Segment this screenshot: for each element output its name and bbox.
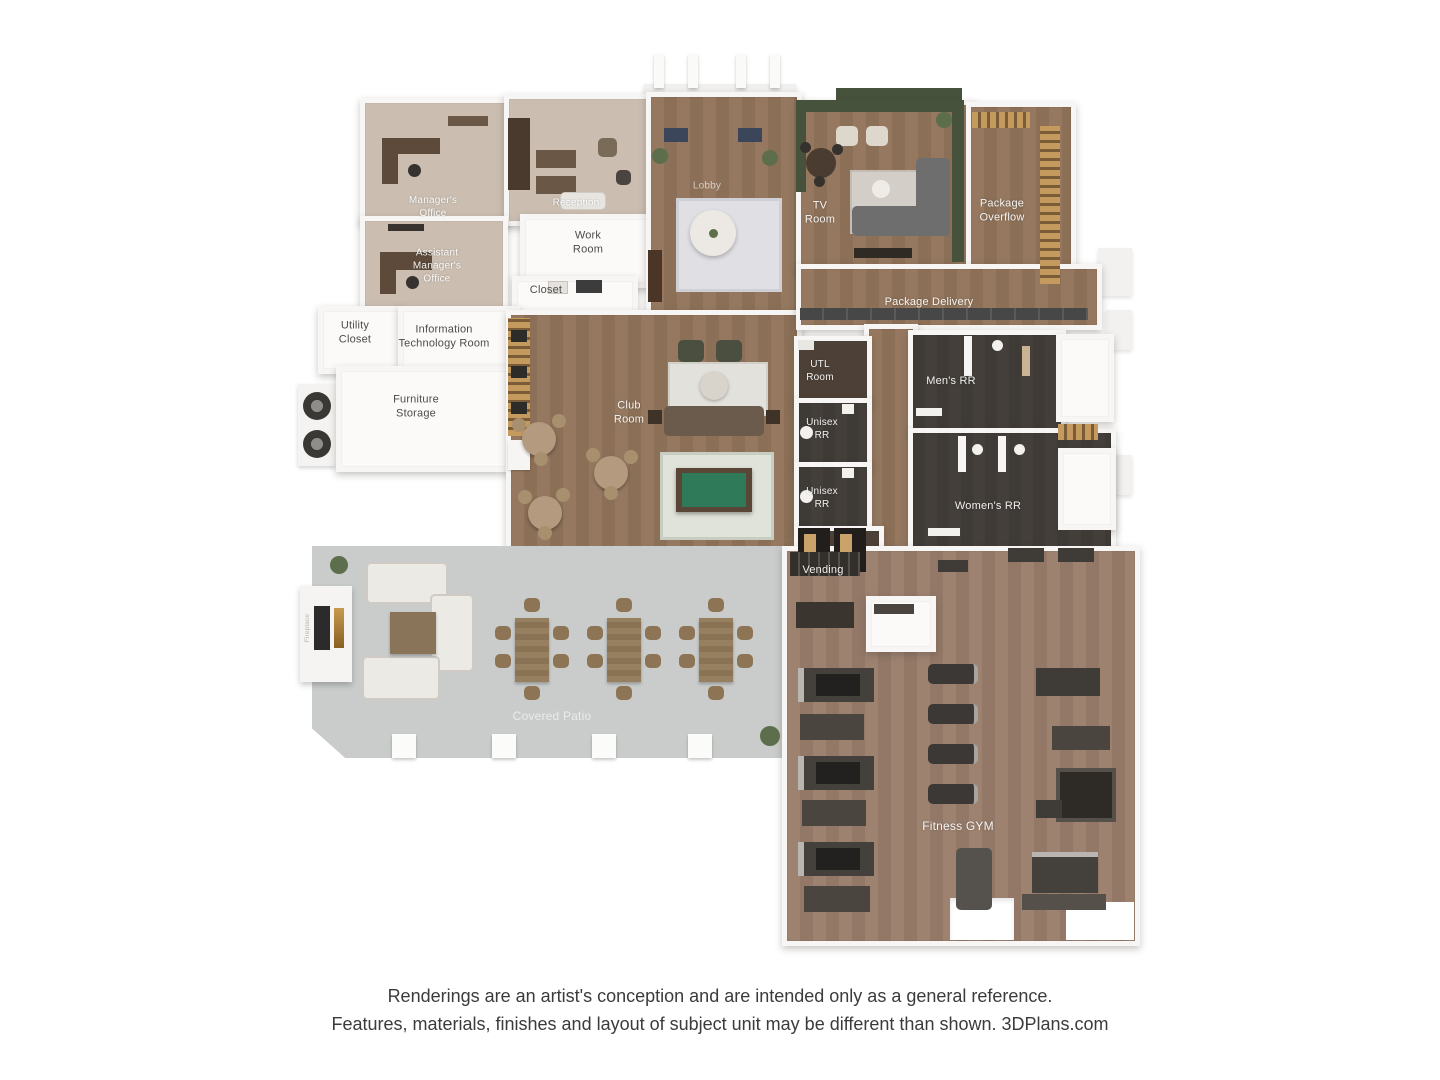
patio-post: [592, 734, 616, 758]
hvac-fan: [303, 392, 331, 420]
round-table: [594, 456, 628, 490]
coffee-table: [872, 180, 890, 198]
locker-shelf: [1058, 424, 1098, 440]
parcel-lockers: [800, 308, 1088, 320]
patio-coffee-table: [390, 612, 436, 654]
office-chair: [408, 164, 421, 177]
patio-chair: [679, 626, 695, 640]
kitchen-appliance: [511, 366, 527, 378]
patio-post: [688, 734, 712, 758]
work-table: [548, 281, 568, 294]
reception-sofa: [560, 192, 606, 210]
patio-chair: [645, 654, 661, 668]
potted-plant: [760, 726, 780, 746]
reception-desk: [536, 150, 576, 168]
exterior-stub: [1098, 248, 1132, 296]
potted-plant: [936, 112, 952, 128]
patio-chair: [737, 626, 753, 640]
rr-sink-counter: [916, 408, 942, 416]
patio-post: [492, 734, 516, 758]
elliptical: [956, 848, 992, 910]
club-sofa: [664, 406, 764, 436]
toilet: [992, 340, 1003, 351]
porch-pillar: [654, 54, 664, 88]
porch-pillar: [736, 54, 746, 88]
toilet: [800, 490, 813, 503]
porch-pillar: [770, 54, 780, 88]
dining-chair: [800, 142, 811, 153]
patio-chair: [524, 686, 540, 700]
patio-post: [392, 734, 416, 758]
round-table: [522, 422, 556, 456]
table-plant: [709, 229, 718, 238]
room-side-closet: [1058, 448, 1116, 530]
disclaimer-line2: Features, materials, finishes and layout…: [0, 1010, 1440, 1038]
reception-chair: [616, 170, 631, 185]
rr-partition: [998, 436, 1006, 472]
dining-chair: [832, 144, 843, 155]
fireplace-flame: [334, 608, 344, 648]
club-chair: [586, 448, 600, 462]
gym-machine: [1058, 548, 1094, 562]
club-chair: [534, 452, 548, 466]
patio-chair: [524, 598, 540, 612]
copier: [576, 280, 602, 293]
power-rack: [1056, 768, 1116, 822]
room-utility-closet: [318, 306, 404, 374]
weight-machine: [1052, 726, 1110, 750]
dining-table-dark: [806, 148, 836, 178]
patio-chair: [616, 598, 632, 612]
floor-plan: Manager's Office Reception Assistant Man…: [0, 0, 1440, 1080]
rr-partition: [964, 336, 972, 376]
treadmill: [1032, 852, 1098, 893]
room-side-closet: [1056, 334, 1114, 422]
potted-plant: [762, 150, 778, 166]
sectional-sofa: [852, 206, 950, 236]
club-chair: [518, 490, 532, 504]
club-chair: [604, 486, 618, 500]
kitchen-appliance: [511, 402, 527, 414]
patio-chair: [553, 626, 569, 640]
office-credenza: [448, 116, 488, 126]
rowing-machine: [1036, 800, 1062, 818]
dumbbell-rack: [790, 552, 860, 576]
potted-plant: [330, 556, 348, 574]
patio-dining-table: [515, 618, 549, 682]
spin-bike: [928, 744, 978, 764]
club-armchair: [678, 340, 704, 362]
club-armchair: [716, 340, 742, 362]
side-table: [766, 410, 780, 424]
office-desk-return: [380, 252, 396, 294]
spin-bike: [928, 664, 978, 684]
toilet: [800, 426, 813, 439]
tv-room-accent-wall: [952, 100, 964, 262]
reception-armchair: [598, 138, 617, 157]
side-table: [648, 410, 662, 424]
wall-art: [738, 128, 762, 142]
gym-bench: [938, 560, 968, 572]
patio-chair: [679, 654, 695, 668]
club-chair: [552, 414, 566, 428]
package-shelves: [972, 112, 1030, 128]
gym-bench: [1022, 894, 1106, 910]
rr-partition: [958, 436, 966, 472]
media-console: [854, 248, 912, 258]
rr-stall-door: [1022, 346, 1030, 376]
dining-chair: [814, 176, 825, 187]
weight-machine: [804, 886, 870, 912]
sink: [842, 404, 854, 414]
room-furniture-storage: [336, 366, 518, 472]
club-chair: [538, 526, 552, 540]
wall-art: [388, 224, 424, 231]
patio-chair: [645, 626, 661, 640]
patio-chair: [737, 654, 753, 668]
office-chair: [406, 276, 419, 289]
office-desk-return: [382, 138, 398, 184]
room-it-room: [398, 306, 520, 374]
club-coffee-table: [700, 372, 728, 400]
patio-chair: [495, 626, 511, 640]
rr-sink-counter: [928, 528, 960, 536]
porch-pillar: [688, 54, 698, 88]
club-chair: [556, 488, 570, 502]
patio-chair: [495, 654, 511, 668]
club-chair: [512, 418, 526, 432]
potted-plant: [652, 148, 668, 164]
reception-bookcase: [508, 118, 530, 190]
patio-chair: [587, 654, 603, 668]
utility-sink: [798, 340, 814, 350]
package-shelves: [1040, 126, 1060, 284]
round-table: [528, 496, 562, 530]
hvac-fan: [303, 430, 331, 458]
patio-sofa: [362, 656, 440, 700]
treadmill-belt: [816, 762, 860, 784]
spin-bike: [928, 704, 978, 724]
sideboard: [648, 250, 662, 302]
patio-chair: [553, 654, 569, 668]
cable-machine: [1036, 668, 1100, 696]
patio-dining-table: [699, 618, 733, 682]
patio-chair: [616, 686, 632, 700]
fireplace-screen: [314, 606, 330, 650]
storage-shelf: [874, 604, 914, 614]
room-mens-rr: [908, 330, 1066, 434]
toilet: [1014, 444, 1025, 455]
patio-chair: [587, 626, 603, 640]
gym-machine: [1008, 548, 1044, 562]
patio-chair: [708, 686, 724, 700]
club-chair: [624, 450, 638, 464]
patio-chair: [708, 598, 724, 612]
weight-machine: [802, 800, 866, 826]
toilet: [972, 444, 983, 455]
disclaimer-line1: Renderings are an artist's conception an…: [0, 982, 1440, 1010]
weight-rack: [796, 602, 854, 628]
tv-room-accent-wall: [796, 100, 964, 112]
spin-bike: [928, 784, 978, 804]
patio-dining-table: [607, 618, 641, 682]
kitchen-appliance: [511, 330, 527, 342]
pool-table-felt: [682, 473, 746, 507]
treadmill-belt: [816, 674, 860, 696]
treadmill-belt: [816, 848, 860, 870]
disclaimer: Renderings are an artist's conception an…: [0, 982, 1440, 1038]
wall-art: [664, 128, 688, 142]
cream-armchair: [866, 126, 888, 146]
cream-armchair: [836, 126, 858, 146]
sink: [842, 468, 854, 478]
weight-machine: [800, 714, 864, 740]
